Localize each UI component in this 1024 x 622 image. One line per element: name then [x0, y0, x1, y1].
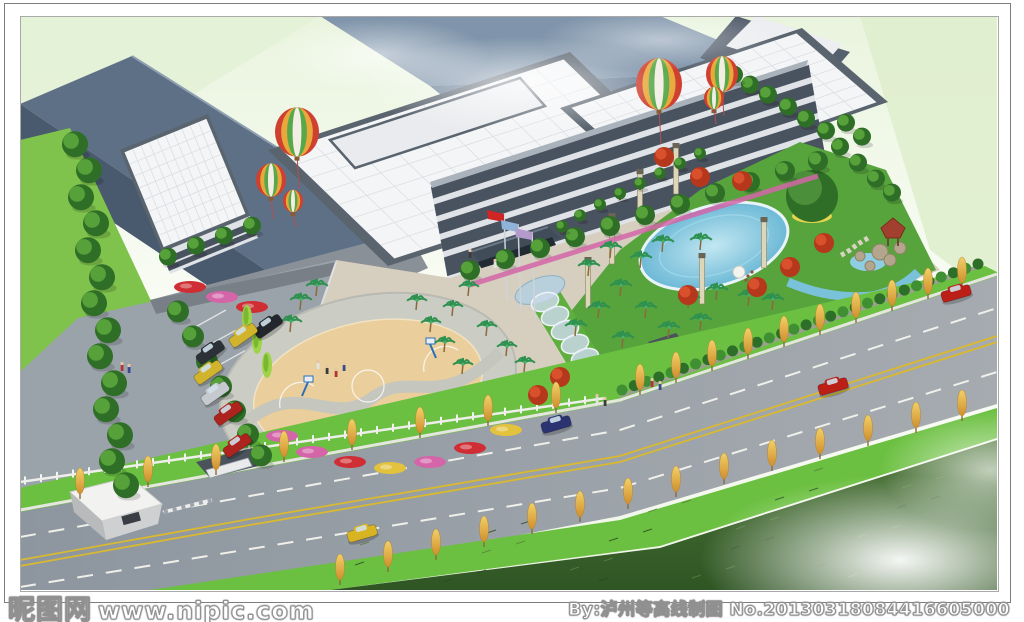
nipic-logo: 昵图网: [8, 595, 92, 622]
watermark-left: 昵图网www.nipic.com: [8, 588, 315, 622]
clipped-scene: [20, 10, 1024, 622]
architectural-rendering-poster: 昵图网www.nipic.com By:泸州等高线制图 No.201303180…: [0, 0, 1024, 622]
watermark-right: By:泸州等高线制图 No.20130318084416605000: [568, 595, 1010, 620]
nipic-url: www.nipic.com: [98, 597, 315, 622]
rendering-scene: [0, 0, 1024, 622]
